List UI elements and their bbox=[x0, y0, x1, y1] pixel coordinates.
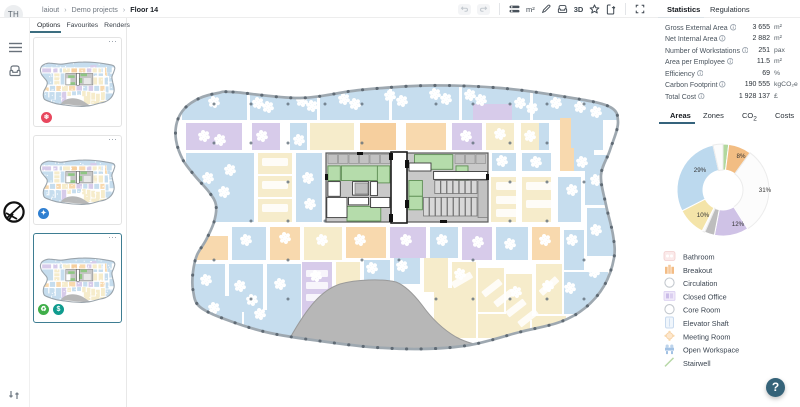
svg-text:Elevator Shaft: Elevator Shaft bbox=[683, 319, 729, 328]
svg-text:Stairwell: Stairwell bbox=[683, 359, 711, 368]
svg-text:Breakout: Breakout bbox=[683, 266, 712, 275]
svg-text:Closed Office: Closed Office bbox=[683, 292, 727, 301]
svg-text:12%: 12% bbox=[732, 221, 745, 228]
svg-text:10%: 10% bbox=[697, 212, 710, 219]
svg-text:Meeting Room: Meeting Room bbox=[683, 332, 730, 341]
svg-text:31%: 31% bbox=[759, 187, 772, 194]
svg-text:8%: 8% bbox=[737, 153, 746, 160]
svg-text:Core Room: Core Room bbox=[683, 306, 720, 315]
svg-text:Open Workspace: Open Workspace bbox=[683, 346, 739, 355]
svg-text:Circulation: Circulation bbox=[683, 279, 717, 288]
svg-text:Bathroom: Bathroom bbox=[683, 253, 715, 262]
svg-text:29%: 29% bbox=[694, 167, 707, 174]
